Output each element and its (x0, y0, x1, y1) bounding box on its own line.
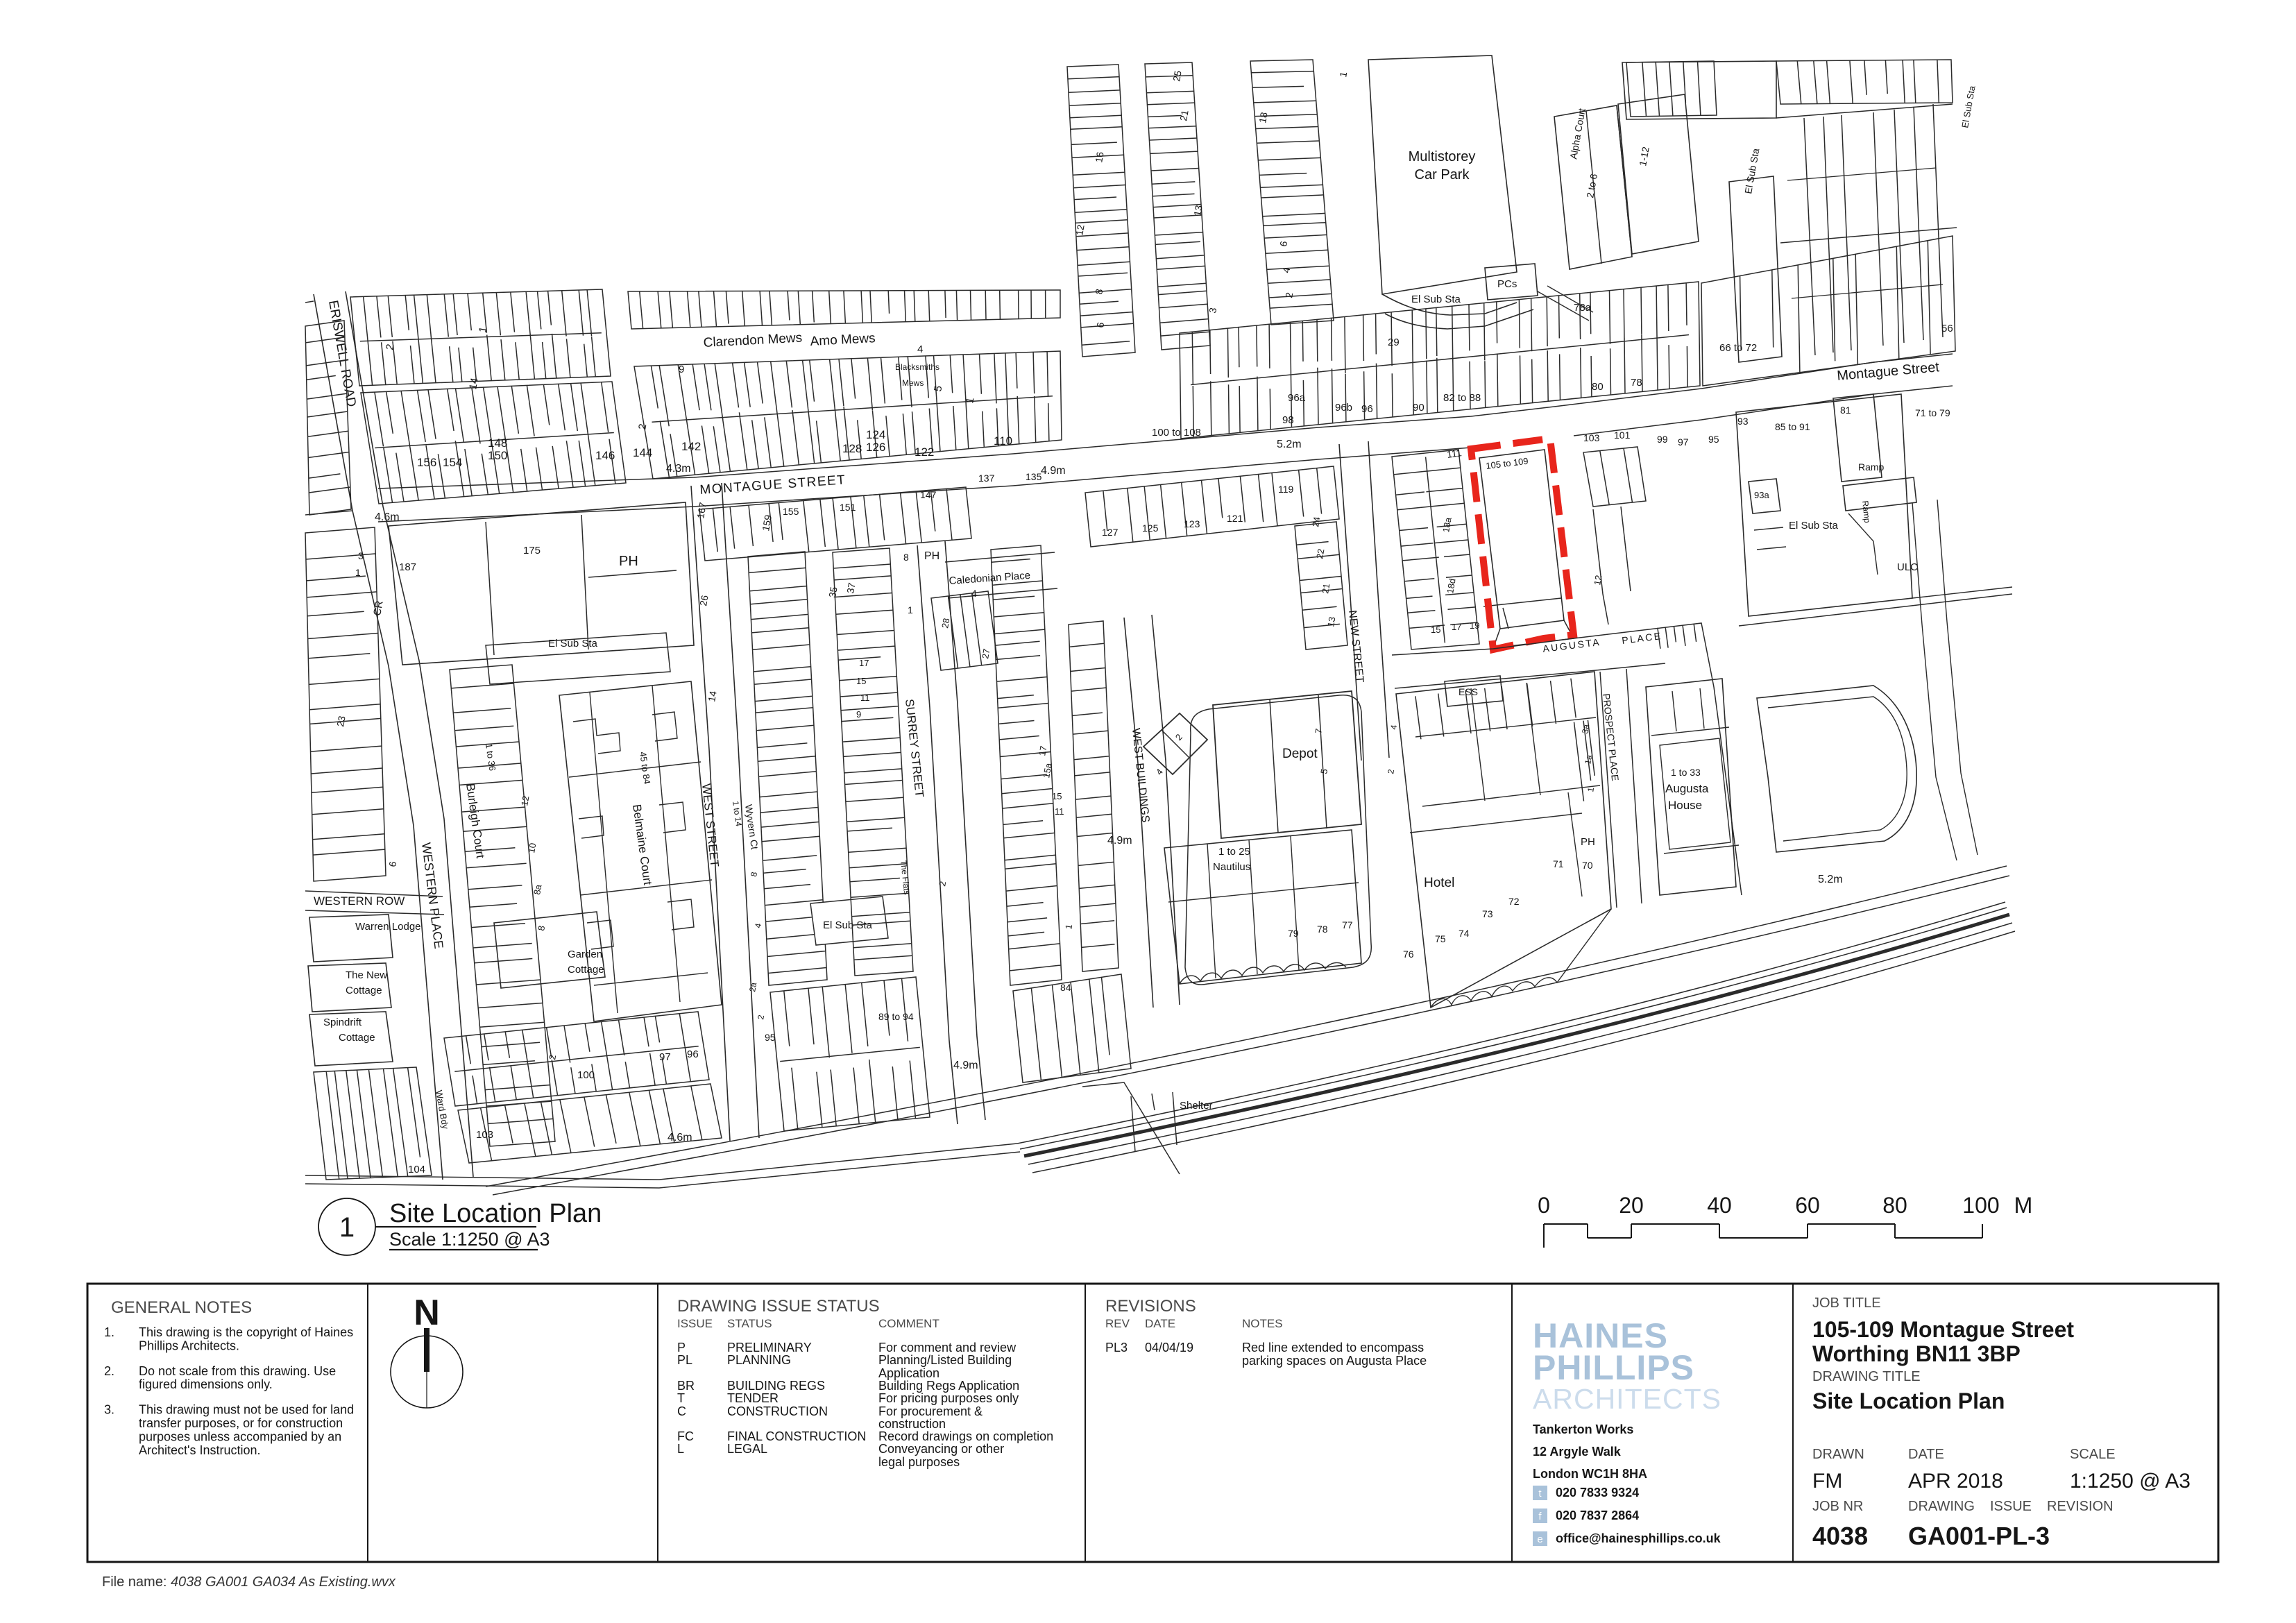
svg-text:PCs: PCs (1497, 278, 1517, 290)
svg-text:REVISIONS: REVISIONS (1105, 1297, 1196, 1316)
svg-text:14: 14 (706, 690, 718, 702)
svg-text:APR 2018: APR 2018 (1908, 1470, 2003, 1493)
svg-text:9: 9 (679, 364, 684, 375)
svg-text:76: 76 (1403, 949, 1414, 960)
svg-text:Car Park: Car Park (1415, 167, 1470, 182)
svg-text:4.9m: 4.9m (1107, 835, 1132, 847)
svg-text:146: 146 (595, 449, 615, 462)
svg-text:125: 125 (1142, 522, 1159, 534)
svg-text:Application: Application (878, 1366, 939, 1380)
svg-text:17: 17 (1037, 745, 1048, 757)
svg-text:DRAWING: DRAWING (1908, 1499, 1975, 1514)
svg-text:El Sub Sta: El Sub Sta (823, 919, 873, 931)
svg-text:28: 28 (939, 618, 951, 629)
svg-text:96a: 96a (1288, 392, 1306, 404)
svg-text:Hotel: Hotel (1424, 876, 1454, 890)
svg-text:El Sub Sta: El Sub Sta (1411, 294, 1461, 305)
svg-text:London WC1H 8HA: London WC1H 8HA (1533, 1467, 1647, 1481)
svg-text:9: 9 (856, 709, 861, 720)
svg-text:File name: 4038 GA001 GA034 As: File name: 4038 GA001 GA034 As Existing.… (102, 1574, 396, 1590)
svg-text:Site Location Plan: Site Location Plan (389, 1199, 602, 1228)
svg-text:12: 12 (1592, 575, 1604, 586)
svg-text:4038: 4038 (1812, 1522, 1868, 1550)
svg-text:10: 10 (526, 842, 538, 854)
svg-text:96b: 96b (1335, 402, 1352, 414)
svg-text:4.3m: 4.3m (666, 463, 691, 475)
svg-text:122: 122 (915, 445, 934, 459)
svg-text:DATE: DATE (1908, 1447, 1944, 1462)
svg-text:T: T (677, 1391, 685, 1405)
svg-text:Worthing BN11 3BP: Worthing BN11 3BP (1812, 1341, 2021, 1366)
svg-text:135: 135 (1026, 471, 1042, 482)
svg-text:119: 119 (1278, 484, 1294, 495)
svg-text:150: 150 (488, 449, 507, 462)
svg-text:3: 3 (358, 550, 364, 561)
svg-text:11: 11 (860, 692, 870, 703)
svg-text:20: 20 (1619, 1193, 1644, 1218)
svg-text:purposes unless accompanied by: purposes unless accompanied by an (139, 1429, 341, 1443)
svg-text:Record drawings on completion: Record drawings on completion (878, 1429, 1053, 1443)
svg-text:Building Regs Application: Building Regs Application (878, 1379, 1019, 1393)
svg-text:P: P (677, 1341, 686, 1354)
svg-text:Warren Lodge: Warren Lodge (355, 921, 421, 933)
svg-text:ESS: ESS (1459, 686, 1478, 697)
svg-text:Cottage: Cottage (346, 985, 382, 996)
svg-text:BR: BR (677, 1379, 695, 1393)
svg-text:17: 17 (1452, 622, 1461, 632)
svg-text:NOTES: NOTES (1242, 1317, 1283, 1330)
svg-text:101: 101 (1614, 430, 1631, 441)
svg-text:3a: 3a (1580, 724, 1591, 735)
svg-text:14: 14 (467, 377, 481, 390)
svg-text:13: 13 (1325, 616, 1337, 628)
svg-text:Scale 1:1250 @ A3: Scale 1:1250 @ A3 (389, 1229, 550, 1250)
svg-text:Ramp: Ramp (1858, 461, 1885, 473)
svg-text:103: 103 (476, 1129, 493, 1141)
svg-text:House: House (1668, 799, 1702, 812)
svg-text:FC: FC (677, 1429, 694, 1443)
svg-text:26: 26 (697, 594, 710, 606)
svg-text:11: 11 (1055, 806, 1064, 817)
svg-text:80: 80 (1882, 1193, 1907, 1218)
svg-text:25: 25 (1171, 69, 1183, 82)
svg-text:Shelter: Shelter (1180, 1100, 1213, 1112)
svg-text:COMMENT: COMMENT (878, 1317, 939, 1330)
svg-text:73: 73 (1482, 908, 1493, 919)
svg-text:80: 80 (1592, 381, 1604, 393)
svg-text:56: 56 (1941, 323, 1953, 334)
svg-text:22: 22 (1314, 548, 1326, 560)
svg-text:29: 29 (1388, 337, 1400, 348)
svg-text:154: 154 (443, 456, 462, 469)
svg-text:96: 96 (687, 1048, 699, 1060)
svg-text:STATUS: STATUS (727, 1317, 772, 1330)
svg-text:70: 70 (1582, 860, 1593, 871)
svg-text:e: e (1537, 1533, 1542, 1545)
svg-text:137: 137 (978, 473, 995, 484)
svg-text:37: 37 (844, 581, 857, 594)
svg-text:85 to 91: 85 to 91 (1775, 421, 1810, 432)
svg-text:DRAWN: DRAWN (1812, 1447, 1864, 1462)
svg-text:parking spaces on Augusta Plac: parking spaces on Augusta Place (1242, 1354, 1427, 1368)
svg-text:L: L (677, 1442, 684, 1456)
svg-text:97: 97 (1678, 436, 1689, 448)
svg-text:95: 95 (765, 1032, 776, 1043)
svg-text:PH: PH (1581, 836, 1595, 848)
svg-text:100 to 108: 100 to 108 (1152, 427, 1201, 439)
svg-text:78: 78 (1317, 924, 1328, 935)
svg-text:4: 4 (917, 343, 923, 355)
svg-text:1 to 33: 1 to 33 (1671, 767, 1701, 778)
svg-text:19: 19 (1470, 620, 1479, 631)
svg-text:4.9m: 4.9m (953, 1060, 978, 1071)
svg-text:PLANNING: PLANNING (727, 1353, 791, 1367)
svg-text:15: 15 (1052, 791, 1062, 801)
svg-text:Augusta: Augusta (1665, 782, 1709, 795)
svg-text:020 7833 9324: 020 7833 9324 (1556, 1486, 1639, 1499)
svg-text:103: 103 (1583, 432, 1600, 443)
svg-text:Multistorey: Multistorey (1409, 149, 1476, 164)
svg-text:FM: FM (1812, 1470, 1842, 1493)
svg-text:ISSUE: ISSUE (1990, 1499, 2032, 1514)
svg-text:DRAWING ISSUE STATUS: DRAWING ISSUE STATUS (677, 1297, 880, 1316)
svg-text:151: 151 (840, 502, 856, 513)
svg-text:LEGAL: LEGAL (727, 1442, 767, 1456)
svg-text:111: 111 (1446, 447, 1463, 460)
svg-text:ULC: ULC (1897, 561, 1918, 573)
svg-text:72: 72 (1508, 896, 1520, 907)
svg-text:JOB NR: JOB NR (1812, 1499, 1863, 1514)
svg-text:TENDER: TENDER (727, 1391, 779, 1405)
svg-text:78: 78 (1631, 377, 1642, 389)
svg-text:90: 90 (1413, 402, 1425, 414)
svg-text:PH: PH (619, 554, 638, 569)
svg-text:CONSTRUCTION: CONSTRUCTION (727, 1404, 828, 1418)
svg-text:Phillips Architects.: Phillips Architects. (139, 1339, 239, 1352)
svg-text:2.: 2. (104, 1364, 114, 1378)
svg-text:1.: 1. (104, 1325, 114, 1339)
svg-text:99: 99 (1657, 434, 1668, 445)
svg-text:M: M (2014, 1193, 2033, 1218)
svg-text:12 Argyle Walk: 12 Argyle Walk (1533, 1445, 1622, 1459)
svg-text:FINAL CONSTRUCTION: FINAL CONSTRUCTION (727, 1429, 866, 1443)
svg-text:127: 127 (1102, 527, 1119, 538)
svg-text:27: 27 (980, 648, 992, 660)
svg-text:98: 98 (1282, 414, 1294, 426)
svg-text:1: 1 (355, 567, 361, 578)
svg-text:Spindrift: Spindrift (323, 1017, 362, 1028)
svg-text:ISSUE: ISSUE (677, 1317, 713, 1330)
svg-text:Site Location Plan: Site Location Plan (1812, 1388, 2005, 1413)
svg-text:DRAWING TITLE: DRAWING TITLE (1812, 1369, 1921, 1384)
svg-text:89 to 94: 89 to 94 (878, 1011, 914, 1022)
svg-text:1a: 1a (1583, 754, 1594, 765)
svg-text:This drawing is the copyright: This drawing is the copyright of Haines (139, 1325, 353, 1339)
svg-text:N: N (414, 1293, 440, 1333)
svg-text:1: 1 (908, 604, 913, 615)
svg-text:Red line extended to encompass: Red line extended to encompass (1242, 1341, 1424, 1354)
svg-text:5.2m: 5.2m (1818, 874, 1843, 885)
svg-text:Tankerton Works: Tankerton Works (1533, 1422, 1633, 1436)
svg-text:71: 71 (1553, 858, 1564, 869)
svg-text:175: 175 (523, 545, 541, 556)
svg-text:BUILDING REGS: BUILDING REGS (727, 1379, 825, 1393)
svg-text:El Sub Sta: El Sub Sta (1789, 520, 1839, 532)
svg-text:105-109 Montague Street: 105-109 Montague Street (1812, 1317, 2074, 1342)
svg-text:148: 148 (488, 436, 507, 450)
svg-text:legal purposes: legal purposes (878, 1455, 960, 1469)
svg-text:12: 12 (1073, 223, 1086, 236)
svg-text:3.: 3. (104, 1403, 114, 1417)
svg-text:93: 93 (1737, 416, 1749, 427)
svg-text:Architect's Instruction.: Architect's Instruction. (139, 1443, 261, 1457)
svg-text:construction: construction (878, 1417, 946, 1431)
svg-text:18: 18 (1257, 111, 1269, 124)
svg-text:142: 142 (681, 440, 701, 453)
svg-text:144: 144 (633, 446, 652, 459)
svg-text:126: 126 (866, 441, 885, 454)
svg-text:REVISION: REVISION (2047, 1499, 2114, 1514)
svg-text:Conveyancing or other: Conveyancing or other (878, 1442, 1004, 1456)
svg-text:transfer purposes, or for cons: transfer purposes, or for construction (139, 1416, 343, 1430)
svg-text:GENERAL NOTES: GENERAL NOTES (111, 1298, 252, 1317)
svg-text:81: 81 (1840, 405, 1851, 416)
svg-text:office@hainesphillips.co.uk: office@hainesphillips.co.uk (1556, 1531, 1721, 1545)
svg-text:0: 0 (1538, 1193, 1550, 1218)
svg-text:figured dimensions only.: figured dimensions only. (139, 1377, 273, 1391)
svg-text:35: 35 (826, 586, 839, 598)
svg-text:Garden: Garden (568, 949, 602, 960)
svg-text:2a: 2a (747, 982, 758, 993)
svg-text:60: 60 (1795, 1193, 1820, 1218)
svg-text:95: 95 (1708, 434, 1719, 445)
svg-text:ARCHITECTS: ARCHITECTS (1533, 1383, 1721, 1415)
svg-text:23: 23 (334, 715, 347, 727)
svg-text:40: 40 (1707, 1193, 1732, 1218)
svg-text:66 to 72: 66 to 72 (1719, 342, 1757, 354)
svg-text:For pricing purposes only: For pricing purposes only (878, 1391, 1019, 1405)
svg-text:124: 124 (866, 428, 885, 441)
svg-text:This drawing must not be used: This drawing must not be used for land (139, 1403, 354, 1417)
svg-text:78a: 78a (1574, 302, 1592, 314)
svg-text:The New: The New (346, 969, 387, 981)
svg-text:21: 21 (1320, 583, 1332, 595)
svg-text:For comment and review: For comment and review (878, 1341, 1017, 1354)
svg-text:WESTERN ROW: WESTERN ROW (314, 894, 405, 908)
svg-text:1:1250 @ A3: 1:1250 @ A3 (2070, 1470, 2191, 1493)
svg-text:104: 104 (408, 1164, 425, 1175)
svg-text:1 to 25: 1 to 25 (1218, 846, 1250, 858)
svg-text:04/04/19: 04/04/19 (1145, 1341, 1193, 1354)
svg-text:Mews: Mews (902, 378, 924, 388)
svg-text:PRELIMINARY: PRELIMINARY (727, 1341, 812, 1354)
svg-text:16: 16 (1093, 151, 1105, 163)
svg-text:Planning/Listed Building: Planning/Listed Building (878, 1353, 1012, 1367)
svg-text:100: 100 (577, 1069, 595, 1081)
svg-text:110: 110 (994, 434, 1012, 448)
svg-text:GA001-PL-3: GA001-PL-3 (1908, 1522, 2050, 1550)
svg-text:15: 15 (1431, 624, 1440, 635)
svg-text:Cottage: Cottage (339, 1032, 375, 1044)
svg-text:71 to 79: 71 to 79 (1915, 407, 1950, 418)
svg-text:156: 156 (417, 456, 436, 469)
svg-text:15: 15 (856, 676, 866, 686)
svg-text:Nautilus: Nautilus (1213, 861, 1250, 873)
svg-text:C: C (677, 1404, 686, 1418)
svg-text:82 to 88: 82 to 88 (1443, 392, 1481, 404)
svg-text:12: 12 (519, 795, 531, 807)
svg-text:4.6m: 4.6m (667, 1132, 692, 1144)
svg-text:96: 96 (1361, 403, 1373, 415)
svg-text:77: 77 (1342, 919, 1353, 931)
svg-text:4.9m: 4.9m (1041, 465, 1066, 477)
svg-text:128: 128 (842, 442, 862, 455)
svg-text:97: 97 (659, 1051, 671, 1063)
svg-text:Blacksmiths: Blacksmiths (895, 362, 939, 372)
svg-text:100: 100 (1962, 1193, 1999, 1218)
svg-text:PL3: PL3 (1105, 1341, 1128, 1354)
svg-text:JOB TITLE: JOB TITLE (1812, 1295, 1881, 1311)
svg-text:Do not scale from this drawing: Do not scale from this drawing. Use (139, 1364, 336, 1378)
svg-text:Cottage: Cottage (568, 964, 604, 976)
svg-text:1: 1 (339, 1212, 355, 1243)
svg-text:8: 8 (903, 552, 909, 563)
svg-text:020 7837 2864: 020 7837 2864 (1556, 1509, 1639, 1522)
svg-text:17: 17 (859, 658, 869, 668)
svg-text:79: 79 (1288, 928, 1299, 939)
svg-text:187: 187 (399, 561, 416, 573)
svg-text:For procurement &: For procurement & (878, 1404, 983, 1418)
svg-text:REV: REV (1105, 1317, 1130, 1330)
svg-text:21: 21 (1177, 109, 1190, 121)
svg-text:123: 123 (1184, 518, 1200, 529)
svg-text:PL: PL (677, 1353, 692, 1367)
svg-text:75: 75 (1435, 933, 1446, 944)
svg-text:121: 121 (1227, 513, 1243, 524)
svg-text:5.2m: 5.2m (1277, 439, 1302, 450)
svg-text:SCALE: SCALE (2070, 1447, 2116, 1462)
svg-text:74: 74 (1459, 928, 1470, 939)
svg-text:155: 155 (783, 506, 799, 517)
svg-text:147: 147 (920, 489, 937, 500)
svg-text:PHILLIPS: PHILLIPS (1533, 1348, 1694, 1387)
svg-text:Depot: Depot (1282, 747, 1318, 761)
svg-text:DATE: DATE (1145, 1317, 1175, 1330)
svg-text:13: 13 (1191, 204, 1204, 216)
svg-text:93a: 93a (1754, 490, 1769, 500)
svg-text:PH: PH (924, 550, 939, 562)
